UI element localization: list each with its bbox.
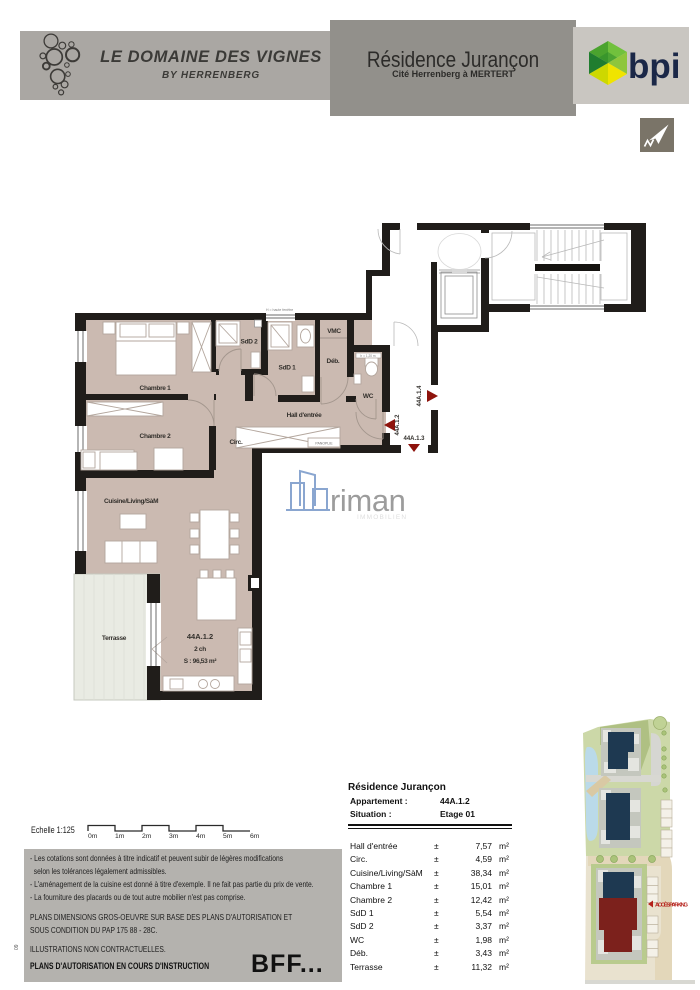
svg-text:SdD 1: SdD 1 [279, 365, 297, 372]
svg-text:Hall d'entrée: Hall d'entrée [287, 412, 323, 419]
svg-text:Chambre 2: Chambre 2 [140, 433, 172, 440]
svg-text:44A.1.3: 44A.1.3 [403, 436, 425, 442]
svg-text:0m: 0m [88, 833, 98, 840]
svg-text:Terrasse: Terrasse [102, 635, 127, 642]
svg-text:5m: 5m [223, 833, 233, 840]
svg-text:2m: 2m [142, 833, 152, 840]
svg-text:IMMOBILIEN: IMMOBILIEN [357, 514, 407, 521]
svg-text:44A.1.2: 44A.1.2 [395, 414, 401, 436]
svg-text:h = 1,20 m: h = 1,20 m [360, 354, 375, 358]
svg-text:S : 96,53 m²: S : 96,53 m² [184, 658, 218, 665]
svg-text:Cuisine/Living/SàM: Cuisine/Living/SàM [104, 498, 158, 505]
svg-text:1m: 1m [115, 833, 125, 840]
svg-text:H = haute fenêtre: H = haute fenêtre [266, 308, 293, 312]
svg-text:4m: 4m [196, 833, 206, 840]
svg-text:riman: riman [330, 483, 406, 518]
svg-text:44A.1.2: 44A.1.2 [187, 632, 213, 641]
svg-text:Chambre 1: Chambre 1 [140, 385, 172, 392]
svg-text:PANOPLIE: PANOPLIE [315, 442, 333, 446]
svg-text:WC: WC [363, 393, 374, 400]
svg-text:44A.1.4: 44A.1.4 [417, 385, 423, 407]
svg-text:SdD 2: SdD 2 [241, 339, 259, 346]
svg-text:3m: 3m [169, 833, 179, 840]
svg-text:6m: 6m [250, 833, 260, 840]
svg-text:Déb.: Déb. [327, 358, 340, 365]
svg-text:VMC: VMC [327, 328, 341, 335]
svg-text:Circ.: Circ. [230, 439, 243, 446]
svg-text:2 ch: 2 ch [194, 646, 206, 653]
